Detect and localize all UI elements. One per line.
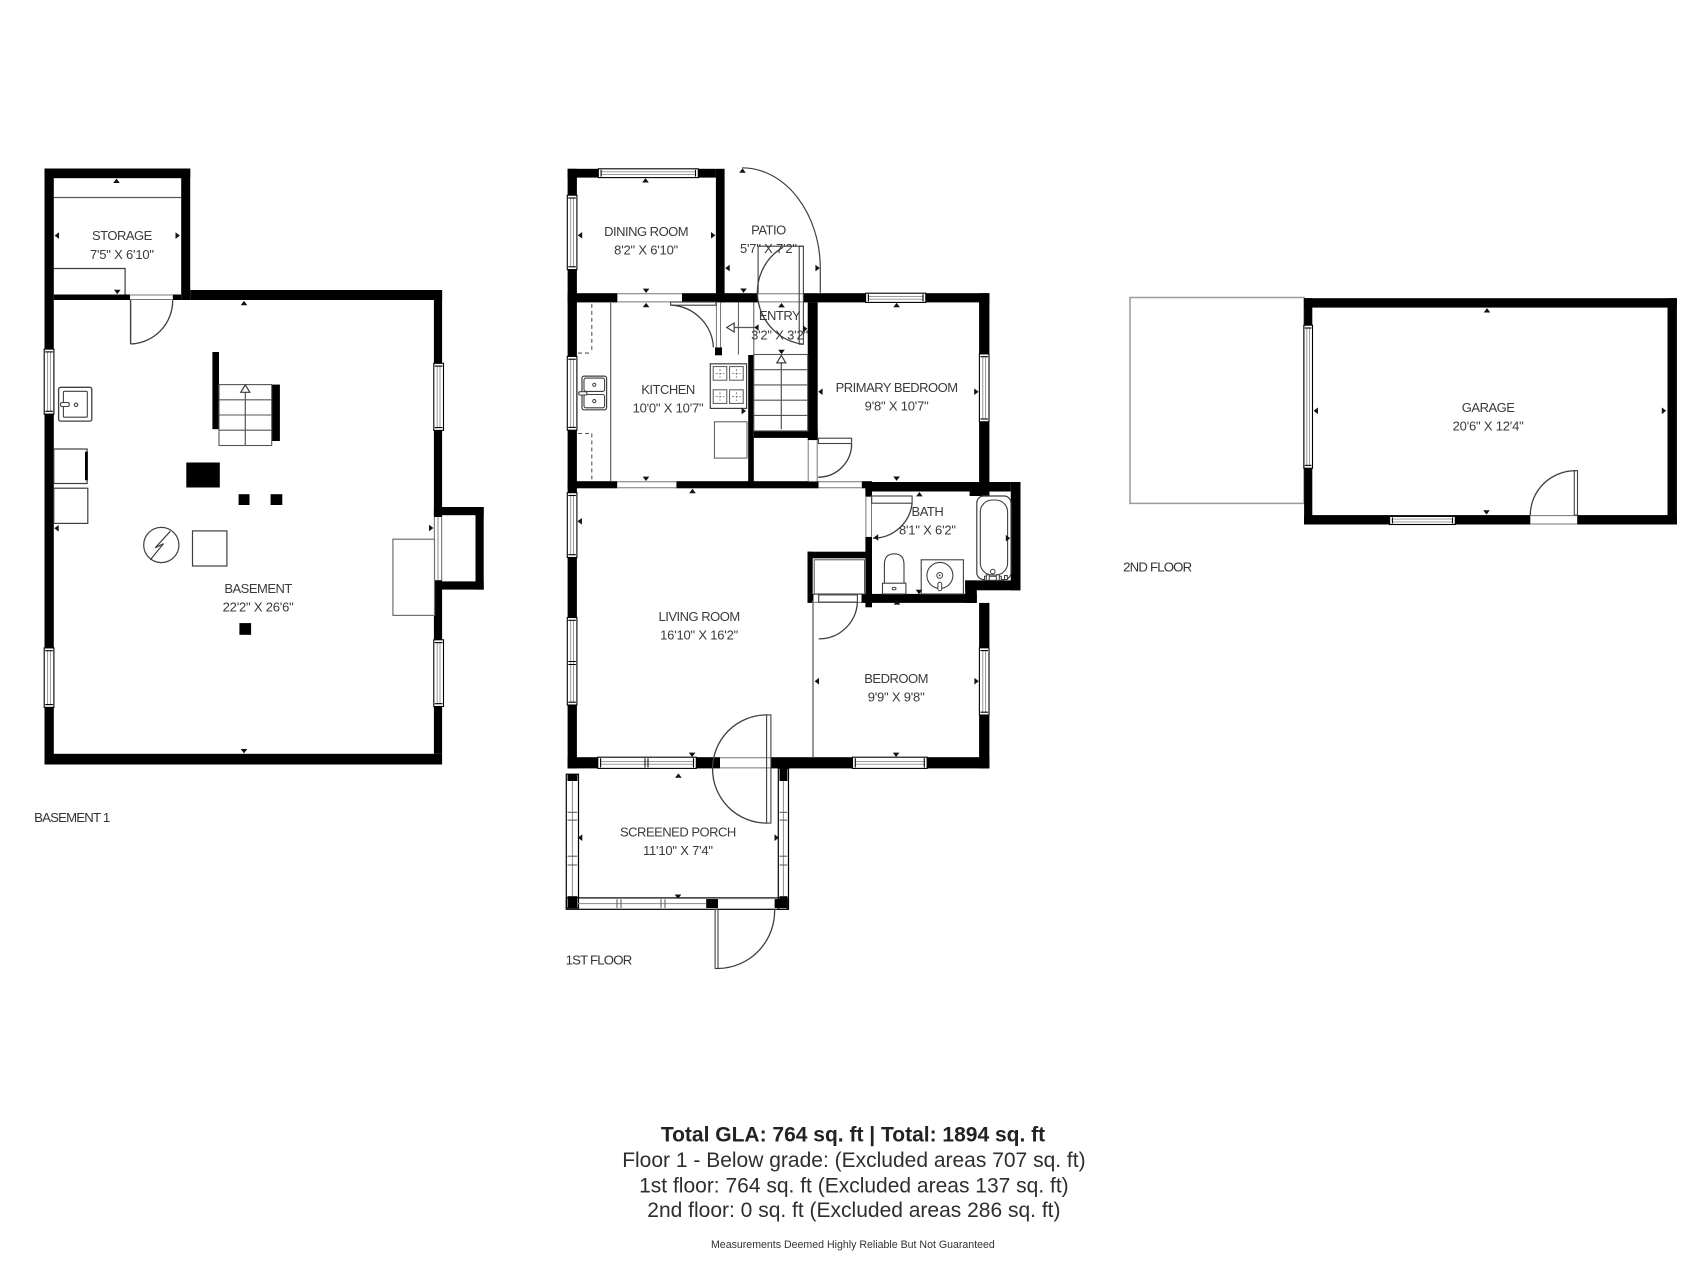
svg-text:BEDROOM: BEDROOM <box>864 671 928 686</box>
svg-text:20'6" X 12'4": 20'6" X 12'4" <box>1453 418 1524 433</box>
svg-text:BASEMENT 1: BASEMENT 1 <box>34 810 110 825</box>
svg-text:STORAGE: STORAGE <box>92 228 153 243</box>
svg-text:9'9" X 9'8": 9'9" X 9'8" <box>868 690 925 705</box>
svg-text:DINING ROOM: DINING ROOM <box>604 224 688 239</box>
svg-text:16'10" X 16'2": 16'10" X 16'2" <box>660 628 738 643</box>
svg-text:Floor 1 - Below grade: (Exclud: Floor 1 - Below grade: (Excluded areas 7… <box>622 1149 1085 1172</box>
svg-text:10'0" X 10'7": 10'0" X 10'7" <box>633 401 704 416</box>
svg-text:3'2" X 3'2": 3'2" X 3'2" <box>751 328 808 343</box>
svg-text:1st floor: 764 sq. ft (Exclude: 1st floor: 764 sq. ft (Excluded areas 13… <box>639 1174 1069 1197</box>
svg-text:BATH: BATH <box>912 504 944 519</box>
svg-text:KITCHEN: KITCHEN <box>641 382 695 397</box>
svg-text:PATIO: PATIO <box>751 223 786 238</box>
svg-text:9'8" X 10'7": 9'8" X 10'7" <box>865 399 929 414</box>
svg-text:11'10" X 7'4": 11'10" X 7'4" <box>643 843 713 858</box>
svg-text:8'2" X 6'10": 8'2" X 6'10" <box>614 243 678 258</box>
svg-text:PRIMARY BEDROOM: PRIMARY BEDROOM <box>836 380 958 395</box>
svg-text:Total GLA: 764 sq. ft | Total:: Total GLA: 764 sq. ft | Total: 1894 sq. … <box>661 1123 1045 1146</box>
svg-text:BASEMENT: BASEMENT <box>224 581 292 596</box>
svg-text:2nd floor: 0 sq. ft (Excluded: 2nd floor: 0 sq. ft (Excluded areas 286 … <box>647 1199 1060 1222</box>
svg-text:1ST FLOOR: 1ST FLOOR <box>566 953 632 968</box>
svg-text:7'5" X 6'10": 7'5" X 6'10" <box>90 247 154 262</box>
svg-text:2ND FLOOR: 2ND FLOOR <box>1123 560 1192 575</box>
svg-text:LIVING ROOM: LIVING ROOM <box>659 609 740 624</box>
svg-text:8'1" X 6'2": 8'1" X 6'2" <box>899 522 956 537</box>
svg-text:Measurements Deemed Highly Rel: Measurements Deemed Highly Reliable But … <box>711 1239 995 1251</box>
svg-text:22'2" X 26'6": 22'2" X 26'6" <box>223 599 294 614</box>
svg-text:GARAGE: GARAGE <box>1462 400 1515 415</box>
svg-text:ENTRY: ENTRY <box>759 308 801 323</box>
svg-text:SCREENED PORCH: SCREENED PORCH <box>620 824 736 839</box>
svg-text:5'7" X 7'2": 5'7" X 7'2" <box>740 241 797 256</box>
